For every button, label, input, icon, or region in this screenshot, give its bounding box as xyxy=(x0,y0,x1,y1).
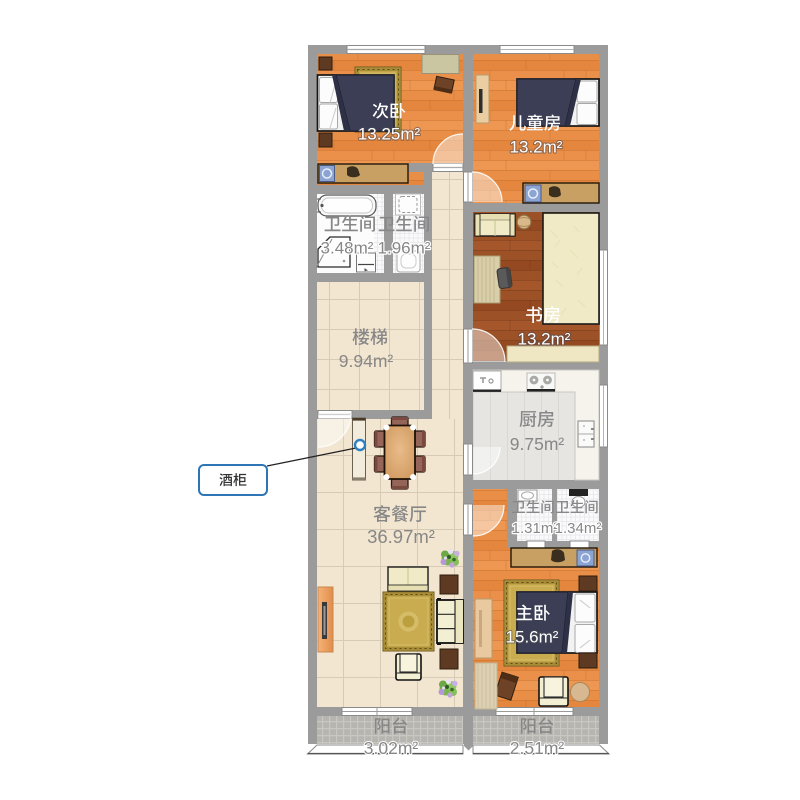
svg-text:13.25m²: 13.25m² xyxy=(358,125,421,144)
svg-text:3.48m²: 3.48m² xyxy=(321,239,374,258)
svg-text:15.6m²: 15.6m² xyxy=(506,628,559,647)
svg-text:1.96m²: 1.96m² xyxy=(378,239,431,258)
svg-text:1.31m²: 1.31m² xyxy=(512,520,559,537)
svg-text:13.2m²: 13.2m² xyxy=(518,330,571,349)
svg-text:1.34m²: 1.34m² xyxy=(555,520,602,537)
svg-text:13.2m²: 13.2m² xyxy=(510,138,563,157)
svg-text:36.97m²: 36.97m² xyxy=(367,526,435,547)
svg-text:9.75m²: 9.75m² xyxy=(510,434,565,454)
svg-text:3.02m²: 3.02m² xyxy=(364,738,419,758)
svg-text:9.94m²: 9.94m² xyxy=(339,351,394,371)
svg-text:2.51m²: 2.51m² xyxy=(510,738,565,758)
